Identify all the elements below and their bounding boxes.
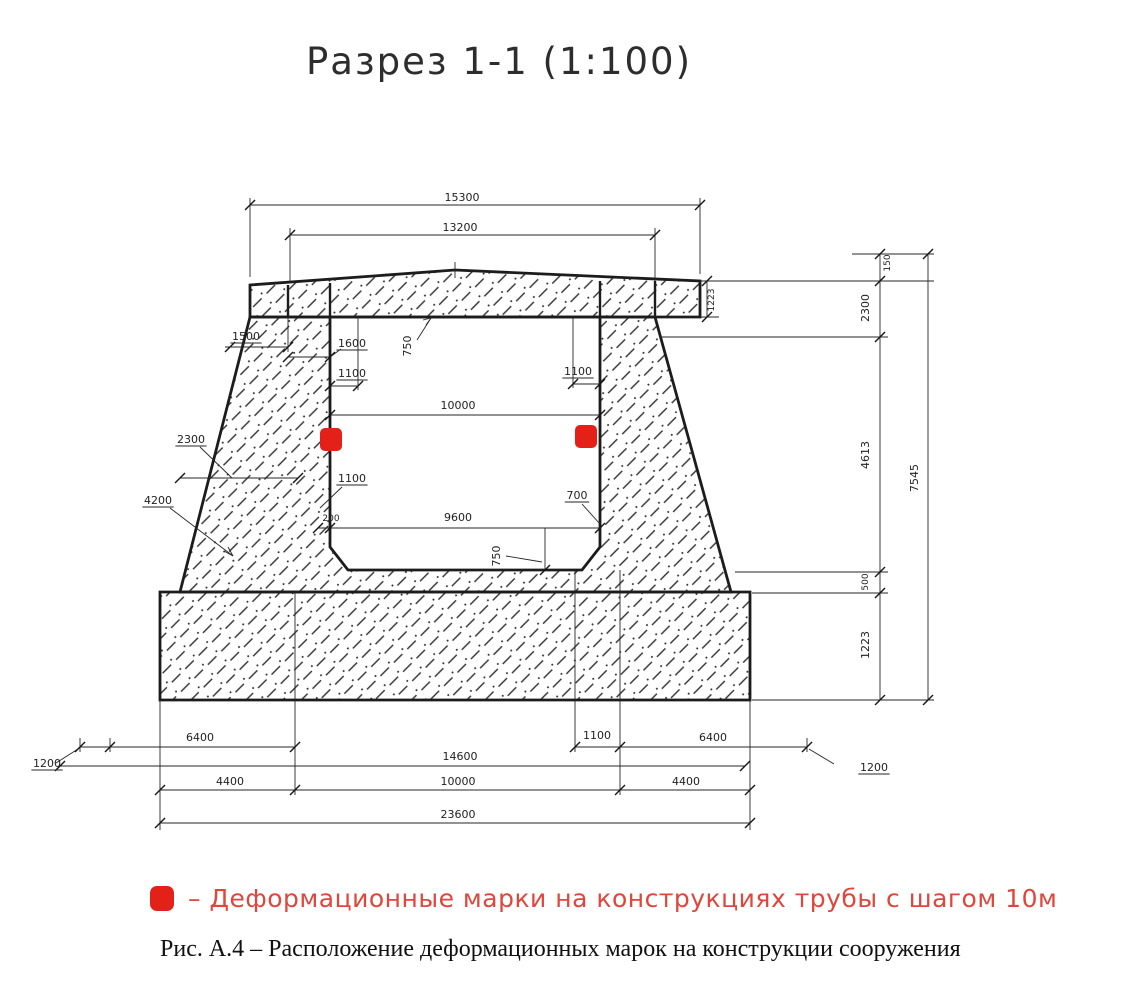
svg-text:10000: 10000: [441, 775, 476, 788]
svg-text:1100: 1100: [564, 365, 592, 378]
svg-text:23600: 23600: [441, 808, 476, 821]
svg-text:2300: 2300: [859, 294, 872, 322]
svg-text:6400: 6400: [699, 731, 727, 744]
svg-text:1600: 1600: [338, 337, 366, 350]
svg-text:6400: 6400: [186, 731, 214, 744]
svg-text:7545: 7545: [908, 464, 921, 492]
svg-text:9600: 9600: [444, 511, 472, 524]
deformation-mark-icon: [150, 886, 174, 911]
figure-caption: Рис. А.4 – Расположение деформационных м…: [160, 936, 961, 963]
top-slab: [250, 270, 700, 317]
legend: – Деформационные марки на конструкциях т…: [150, 884, 1057, 913]
section-drawing: 1530013200150016007501100110010000230042…: [0, 0, 1143, 982]
deformation-mark: [320, 428, 342, 451]
svg-text:1200: 1200: [33, 757, 61, 770]
svg-text:1223: 1223: [859, 631, 872, 659]
svg-text:200: 200: [322, 514, 339, 524]
svg-text:750: 750: [490, 546, 503, 567]
svg-text:15300: 15300: [445, 191, 480, 204]
svg-text:500: 500: [861, 573, 871, 590]
svg-text:4613: 4613: [859, 441, 872, 469]
svg-text:4400: 4400: [216, 775, 244, 788]
svg-text:14600: 14600: [443, 750, 478, 763]
footing-slab: [160, 592, 750, 700]
body-walls: [180, 317, 731, 592]
deformation-marks: [320, 425, 597, 451]
svg-text:13200: 13200: [443, 221, 478, 234]
svg-text:1100: 1100: [583, 729, 611, 742]
svg-text:1223: 1223: [707, 289, 717, 312]
legend-label: – Деформационные марки на конструкциях т…: [188, 884, 1057, 913]
deformation-mark: [575, 425, 597, 448]
svg-text:700: 700: [567, 489, 588, 502]
svg-text:1100: 1100: [338, 367, 366, 380]
svg-text:10000: 10000: [441, 399, 476, 412]
svg-text:4400: 4400: [672, 775, 700, 788]
svg-text:1100: 1100: [338, 472, 366, 485]
svg-text:2300: 2300: [177, 433, 205, 446]
svg-text:1200: 1200: [860, 761, 888, 774]
svg-text:1500: 1500: [232, 330, 260, 343]
svg-text:4200: 4200: [144, 494, 172, 507]
svg-text:750: 750: [401, 336, 414, 357]
svg-text:150: 150: [883, 254, 893, 271]
